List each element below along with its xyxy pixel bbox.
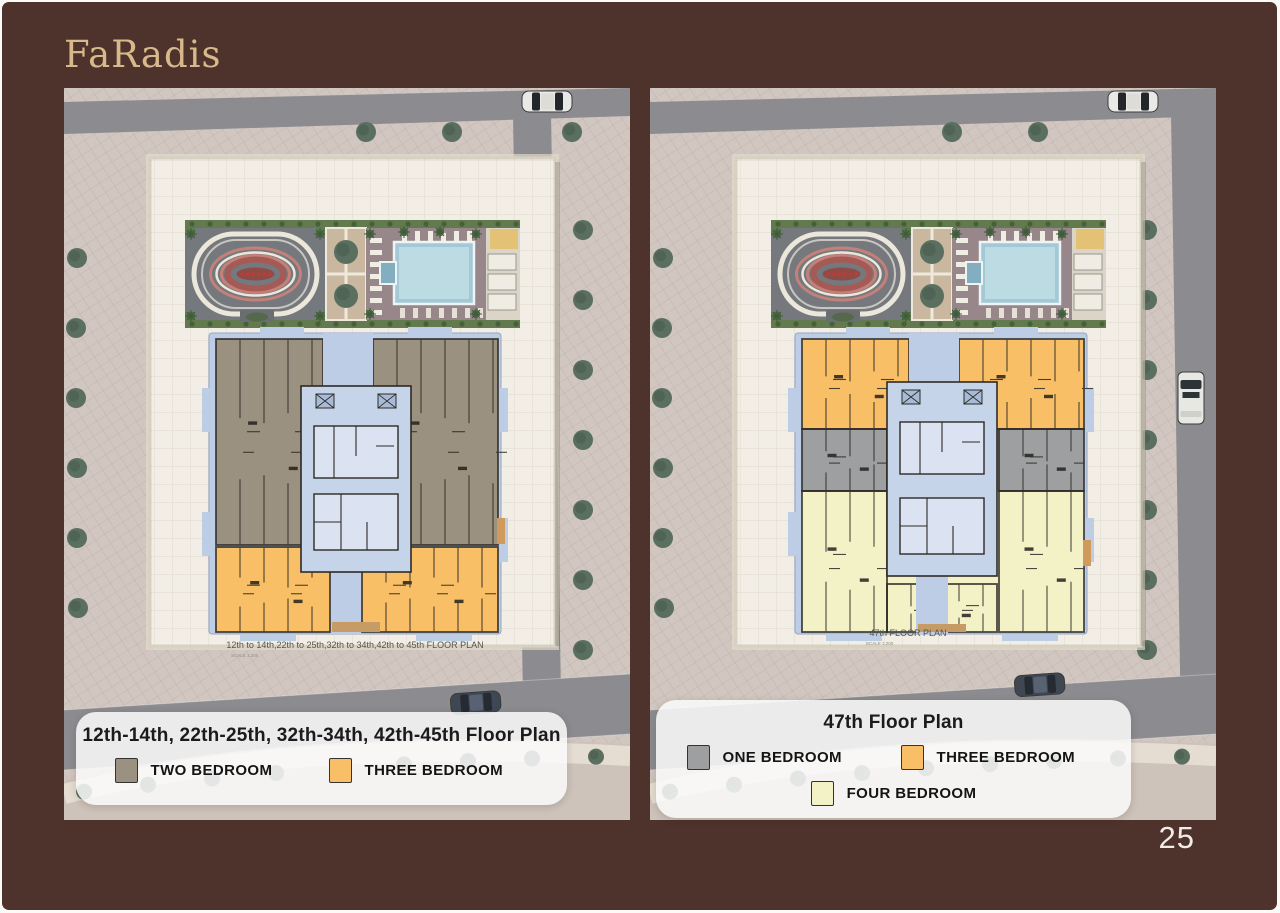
legend-swatch [901, 745, 924, 770]
tree-icon [573, 640, 593, 660]
legend-items: ONE BEDROOMTHREE BEDROOMFOUR BEDROOM [656, 745, 1131, 806]
tree-icon [654, 598, 674, 618]
legend-row: FOUR BEDROOM [656, 781, 1131, 806]
amenity-deck [771, 220, 1106, 328]
running-track [771, 228, 912, 322]
tree-icon [652, 388, 672, 408]
building-core [301, 386, 411, 572]
legend-row: ONE BEDROOMTHREE BEDROOM [656, 745, 1131, 770]
legend-items: TWO BEDROOMTHREE BEDROOM [76, 758, 567, 783]
legend-card: 12th-14th, 22th-25th, 32th-34th, 42th-45… [76, 712, 567, 805]
tree-icon [334, 240, 358, 264]
tree-icon [573, 570, 593, 590]
garden-courtyard [326, 228, 366, 320]
tree-icon [653, 528, 673, 548]
tree-icon [1174, 749, 1190, 765]
legend-title: 12th-14th, 22th-25th, 32th-34th, 42th-45… [82, 725, 561, 747]
plan-scale: SCALE 1:200 [231, 653, 259, 658]
tree-icon [562, 122, 582, 142]
tree-icon [68, 598, 88, 618]
running-track [185, 228, 326, 322]
legend-swatch [811, 781, 834, 806]
legend-label: THREE BEDROOM [365, 762, 504, 779]
legend-item: ONE BEDROOM [687, 745, 887, 770]
tree-icon [920, 284, 944, 308]
swimming-pool [380, 242, 474, 304]
tree-icon [653, 458, 673, 478]
tree-icon [573, 360, 593, 380]
tree-icon [67, 248, 87, 268]
tree-icon [442, 122, 462, 142]
floor-plan-panel-47th: 47th FLOOR PLANSCALE 1:200 47th Floor Pl… [650, 88, 1216, 820]
garden-courtyard [912, 228, 952, 320]
amenity-deck [185, 220, 520, 328]
van-icon [1178, 372, 1204, 424]
site-plan-rendering-typical: 12th to 14th,22th to 25th,32th to 34th,4… [64, 88, 630, 820]
tree-icon [573, 430, 593, 450]
swimming-pool [966, 242, 1060, 304]
tree-icon [67, 528, 87, 548]
tower-floor-plan [788, 327, 1094, 641]
plan-caption: 12th to 14th,22th to 25th,32th to 34th,4… [226, 640, 483, 650]
legend-title: 47th Floor Plan [662, 712, 1125, 734]
car-icon [1014, 673, 1065, 697]
legend-label: THREE BEDROOM [937, 749, 1076, 766]
pool-deck [364, 226, 486, 320]
tree-icon [356, 122, 376, 142]
tree-icon [573, 500, 593, 520]
car-icon [522, 91, 572, 112]
slide-background: FaRadis 12th to 14th,22th to 25th,32th t… [2, 2, 1277, 910]
plan-caption: 47th FLOOR PLAN [869, 628, 946, 638]
legend-label: FOUR BEDROOM [847, 785, 977, 802]
tree-icon [66, 388, 86, 408]
tree-icon [920, 240, 944, 264]
amenity-rooms [1072, 228, 1106, 320]
legend-label: TWO BEDROOM [151, 762, 273, 779]
brand-logo: FaRadis [64, 36, 222, 73]
legend-row: TWO BEDROOMTHREE BEDROOM [76, 758, 567, 783]
tree-icon [588, 749, 604, 765]
legend-card: 47th Floor Plan ONE BEDROOMTHREE BEDROOM… [656, 700, 1131, 818]
site-plan-svg: 12th to 14th,22th to 25th,32th to 34th,4… [64, 88, 630, 820]
tree-icon [67, 458, 87, 478]
legend-label: ONE BEDROOM [723, 749, 842, 766]
building-core [887, 382, 997, 576]
plan-scale: SCALE 1:200 [866, 641, 894, 646]
tree-icon [573, 220, 593, 240]
legend-item: TWO BEDROOM [115, 758, 315, 783]
tree-icon [942, 122, 962, 142]
tree-icon [1028, 122, 1048, 142]
legend-item: THREE BEDROOM [329, 758, 529, 783]
brochure-page: FaRadis 12th to 14th,22th to 25th,32th t… [0, 0, 1280, 913]
tower-floor-plan [202, 327, 508, 641]
tree-icon [653, 248, 673, 268]
tree-icon [652, 318, 672, 338]
tree-icon [66, 318, 86, 338]
tree-icon [334, 284, 358, 308]
tree-icon [573, 290, 593, 310]
legend-swatch [687, 745, 710, 770]
legend-item: THREE BEDROOM [901, 745, 1101, 770]
car-icon [1108, 91, 1158, 112]
amenity-rooms [486, 228, 520, 320]
page-number: 25 [1159, 820, 1195, 856]
legend-swatch [329, 758, 352, 783]
floor-plan-panel-typical: 12th to 14th,22th to 25th,32th to 34th,4… [64, 88, 630, 820]
pool-deck [950, 226, 1072, 320]
legend-item: FOUR BEDROOM [811, 781, 977, 806]
legend-swatch [115, 758, 138, 783]
